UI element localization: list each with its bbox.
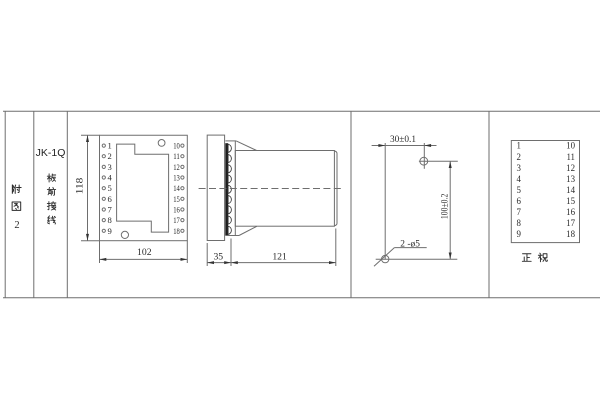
svg-text:17: 17 [566,218,575,228]
svg-text:16: 16 [173,205,180,215]
svg-text:6: 6 [517,196,522,206]
svg-text:2: 2 [108,151,112,161]
svg-text:1: 1 [517,141,521,151]
svg-text:14: 14 [173,183,180,193]
svg-text:13: 13 [173,173,180,183]
svg-text:9: 9 [108,226,112,236]
svg-text:JK-1Q: JK-1Q [36,147,66,159]
svg-text:8: 8 [517,218,522,228]
svg-text:4: 4 [517,174,522,184]
svg-text:3: 3 [517,163,522,173]
svg-text:12: 12 [566,163,575,173]
svg-text:14: 14 [566,185,575,195]
svg-text:12: 12 [173,162,180,172]
svg-text:2: 2 [517,152,521,162]
svg-text:18: 18 [173,226,180,236]
svg-text:5: 5 [108,183,112,193]
svg-text:102: 102 [137,247,152,258]
svg-text:17: 17 [173,215,180,225]
svg-text:2: 2 [14,220,19,231]
svg-text:100±0.2: 100±0.2 [441,193,451,219]
svg-text:9: 9 [517,229,522,239]
svg-text:1: 1 [108,141,112,151]
svg-text:5: 5 [517,185,522,195]
svg-text:2 -ø5: 2 -ø5 [400,239,420,249]
svg-text:7: 7 [108,205,113,215]
svg-text:16: 16 [566,207,575,217]
svg-text:13: 13 [566,174,575,184]
svg-text:18: 18 [566,229,575,239]
svg-text:15: 15 [566,196,575,206]
svg-text:30±0.1: 30±0.1 [390,135,416,145]
svg-text:3: 3 [108,162,112,172]
svg-text:11: 11 [173,151,180,161]
svg-text:11: 11 [566,152,575,162]
svg-text:6: 6 [108,194,113,204]
svg-text:10: 10 [173,141,180,151]
svg-text:7: 7 [517,207,522,217]
svg-text:118: 118 [75,177,85,194]
svg-text:35: 35 [213,251,223,262]
svg-text:10: 10 [566,141,575,151]
svg-text:4: 4 [108,173,113,183]
svg-text:121: 121 [272,251,287,262]
svg-text:8: 8 [108,215,112,225]
svg-text:15: 15 [173,194,180,204]
